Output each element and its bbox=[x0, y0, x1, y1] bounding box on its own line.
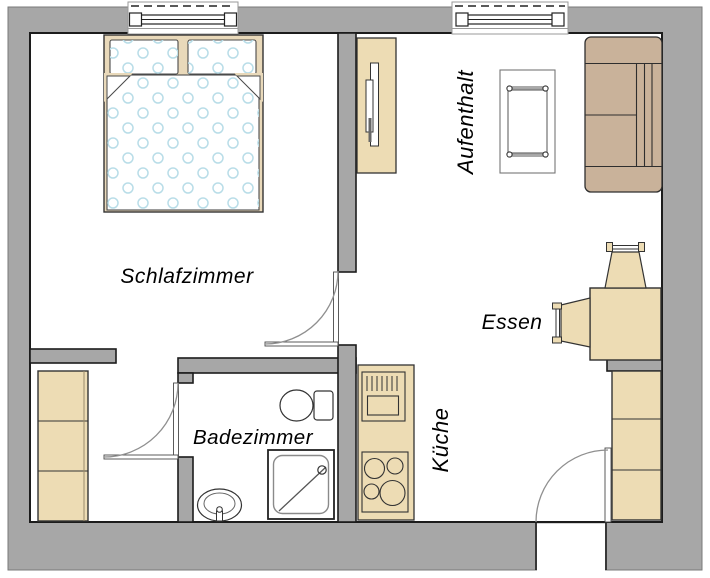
floor-plan: Schlafzimmer Aufenthalt Badezimmer Küche… bbox=[0, 0, 710, 578]
bedroom-window bbox=[128, 2, 238, 34]
wash-basin bbox=[198, 489, 242, 521]
living-label: Aufenthalt bbox=[453, 70, 478, 176]
wall-bathroom-west-stub bbox=[178, 373, 193, 383]
double-bed bbox=[104, 35, 263, 212]
wall-bathroom-west-lower bbox=[178, 457, 193, 522]
dining-chair-north bbox=[605, 243, 646, 289]
wall-bathroom-north bbox=[178, 358, 356, 373]
entry-opening bbox=[536, 522, 606, 578]
bathroom-label: Badezimmer bbox=[193, 426, 314, 449]
bedroom-label: Schlafzimmer bbox=[120, 265, 254, 288]
coffee-table bbox=[500, 70, 555, 173]
living-window bbox=[452, 2, 568, 34]
shower bbox=[268, 450, 334, 519]
entry-wardrobe bbox=[612, 371, 661, 520]
wall-hall-north bbox=[30, 349, 116, 363]
door-leaf bbox=[605, 448, 611, 522]
wall-divider-lower bbox=[338, 345, 356, 522]
tv-sideboard bbox=[357, 38, 396, 173]
dining-label: Essen bbox=[482, 311, 543, 334]
hall-wardrobe bbox=[38, 371, 88, 521]
kitchen-label: Küche bbox=[428, 408, 453, 473]
dining-table bbox=[590, 288, 661, 360]
kitchen-counter bbox=[358, 365, 414, 520]
toilet bbox=[280, 390, 333, 421]
door-leaf bbox=[265, 342, 338, 346]
wall-divider-upper bbox=[338, 33, 356, 272]
sofa bbox=[585, 37, 662, 192]
